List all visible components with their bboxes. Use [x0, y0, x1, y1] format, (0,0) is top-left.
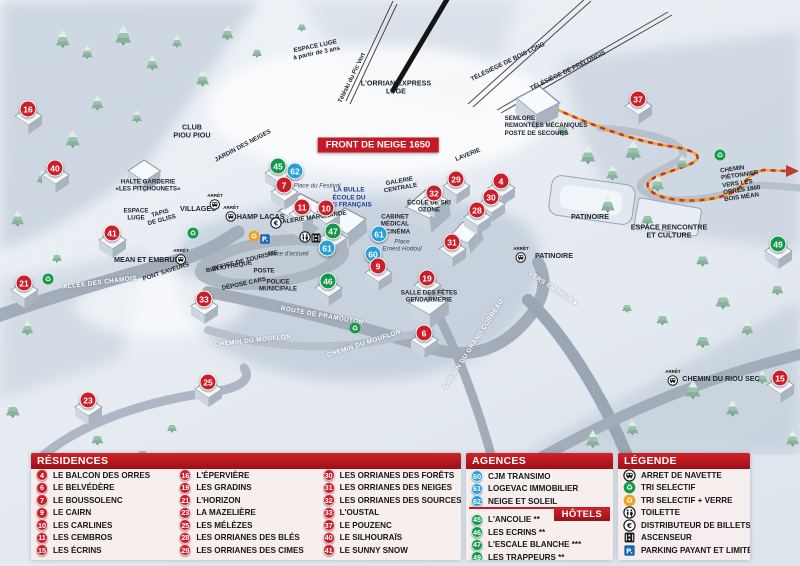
- legend-row: 40LE SILHOURAÏS: [318, 532, 461, 545]
- legend-marker-number: 28: [179, 532, 191, 544]
- legend-marker-number: 4: [36, 469, 48, 481]
- map-marker-6: 6: [416, 325, 433, 342]
- legend-row-label: LES TRAPPEURS **: [488, 553, 564, 560]
- key-row: €DISTRIBUTEUR DE BILLETS: [618, 519, 750, 532]
- map-marker-4: 4: [493, 173, 510, 190]
- key-row-label: PARKING PAYANT ET LIMITÉ: [641, 546, 750, 555]
- legend-row: 7LE BOUSSOLENC: [31, 494, 174, 507]
- legend-row-label: LE SUNNY SNOW: [340, 546, 408, 555]
- parking-icon: P.: [259, 233, 271, 245]
- legend-row: 16L'ÉPERVIÈRE: [174, 469, 317, 482]
- map-marker-46: 46: [320, 273, 337, 290]
- map-label: Place Ernest Hodoul: [382, 239, 421, 254]
- map-marker-19: 19: [419, 270, 436, 287]
- legend-marker-number: 23: [179, 507, 191, 519]
- legend-row: 29LES ORRIANES DES CIMES: [174, 544, 317, 557]
- map-marker-49: 49: [770, 236, 787, 253]
- map-label: POSTE: [254, 267, 275, 274]
- map-marker-30: 30: [483, 189, 500, 206]
- map-label: ÉCOLE DE SKI OZONE: [407, 200, 451, 215]
- legend-row: 6LE BELVÉDÈRE: [31, 482, 174, 495]
- map-marker-47: 47: [325, 223, 342, 240]
- resort-map-poster: ESPACE LUGE à partir de 3 ansTéléski du …: [0, 0, 800, 566]
- legend-marker-number: 25: [179, 519, 191, 531]
- legend-row: 47L'ESCALE BLANCHE ***: [466, 539, 613, 552]
- legend-row-label: LE POUZENC: [340, 521, 392, 530]
- map-marker-62: 62: [287, 163, 304, 180]
- map-marker-7: 7: [276, 177, 293, 194]
- legend-marker-number: 9: [36, 507, 48, 519]
- residences-header: RÉSIDENCES: [31, 453, 461, 469]
- legend-marker-number: 40: [323, 532, 335, 544]
- map-label: PATINOIRE: [571, 213, 609, 221]
- legend-row: 32LES ORRIANES DES SOURCES: [318, 494, 461, 507]
- legend-marker-number: 41: [323, 544, 335, 556]
- legend-row: 19LES GRADINS: [174, 482, 317, 495]
- legend-marker-number: 7: [36, 494, 48, 506]
- recycle-green-icon: ♻: [623, 481, 636, 494]
- key-row: P.PARKING PAYANT ET LIMITÉ: [618, 544, 750, 557]
- map-marker-40: 40: [47, 160, 64, 177]
- bus-stop-icon: ARRÊT: [223, 206, 239, 222]
- map-label: L'ORRIAN EXPRESS LUGE: [361, 80, 431, 97]
- key-header: LÉGENDE: [618, 453, 750, 469]
- key-row: ASCENSEUR: [618, 532, 750, 545]
- legend-row: 61LOGEVAC IMMOBILIER: [466, 483, 613, 496]
- legend-row-label: LES ÉCRINS: [53, 546, 102, 555]
- svg-text:P.: P.: [262, 236, 268, 244]
- arret-caption: ARRÊT: [173, 249, 189, 254]
- bus-stop-icon: ARRÊT: [513, 247, 529, 263]
- recycle-green-icon: ♻: [714, 149, 726, 161]
- legend-row: 9LE CAIRN: [31, 507, 174, 520]
- legend-marker-number: 10: [36, 519, 48, 531]
- legend-row: 62NEIGE ET SOLEIL: [466, 495, 613, 508]
- legend-marker-number: 15: [36, 544, 48, 556]
- key-section: LÉGENDE ARRET DE NAVETTE♻TRI SELECTIF♻TR…: [618, 453, 750, 560]
- agencies-hotels-section: AGENCES IMMOBILIÈRES 60CJM TRANSIMO61LOG…: [466, 453, 613, 560]
- bus-stop-icon: ARRÊT: [173, 249, 189, 265]
- legend-row: 31LES ORRIANES DES NEIGES: [318, 482, 461, 495]
- legend-row: 25LES MÉLÈZES: [174, 519, 317, 532]
- legend-row-label: LA MAZELIÈRE: [196, 508, 256, 517]
- bus-icon: [623, 469, 636, 482]
- arret-caption: ARRÊT: [665, 370, 681, 375]
- parking-icon: P.: [623, 544, 636, 557]
- map-marker-9: 9: [370, 258, 387, 275]
- legend-row-label: LES ORRIANES DES BLÉS: [196, 533, 299, 542]
- key-row-label: TRI SELECTIF + VERRE: [641, 496, 733, 505]
- legend-row: 4LE BALCON DES ORRES: [31, 469, 174, 482]
- legend-marker-number: 6: [36, 482, 48, 494]
- map-marker-29: 29: [448, 171, 465, 188]
- recycle-green-icon: ♻: [349, 322, 361, 334]
- map-marker-32: 32: [426, 185, 443, 202]
- legend-row: 46LES ECRINS **: [466, 526, 613, 539]
- key-row-label: ARRET DE NAVETTE: [641, 471, 722, 480]
- map-label: PATINOIRE: [535, 252, 573, 260]
- svg-text:♻: ♻: [626, 496, 633, 505]
- legend-row-label: L'ESCALE BLANCHE ***: [488, 540, 581, 549]
- legend-row: 11LES CEMBROS: [31, 532, 174, 545]
- legend-marker-number: 30: [323, 469, 335, 481]
- legend-row: 49LES TRAPPEURS **: [466, 551, 613, 560]
- legend-marker-number: 29: [179, 544, 191, 556]
- svg-text:♻: ♻: [251, 232, 257, 241]
- elevator-icon: [623, 531, 636, 544]
- key-row-label: ASCENSEUR: [641, 533, 692, 542]
- legend-panel: RÉSIDENCES 4LE BALCON DES ORRES6LE BELVÉ…: [31, 453, 750, 560]
- legend-marker-number: 31: [323, 482, 335, 494]
- legend-row: 60CJM TRANSIMO: [466, 470, 613, 483]
- recycle-yellow-icon: ♻: [623, 494, 636, 507]
- legend-row-label: LES ORRIANES DES SOURCES: [340, 496, 461, 505]
- legend-row-label: LES MÉLÈZES: [196, 521, 252, 530]
- svg-text:€: €: [626, 521, 632, 530]
- legend-marker-number: 45: [471, 514, 483, 526]
- legend-marker-number: 46: [471, 526, 483, 538]
- residences-column: 16L'ÉPERVIÈRE19LES GRADINS21L'HORIZON23L…: [174, 469, 317, 557]
- legend-row-label: LE SILHOURAÏS: [340, 533, 403, 542]
- map-label: CINÉMA: [386, 228, 410, 235]
- legend-row-label: LE CAIRN: [53, 508, 91, 517]
- legend-row: 28LES ORRIANES DES BLÉS: [174, 532, 317, 545]
- residences-section: RÉSIDENCES 4LE BALCON DES ORRES6LE BELVÉ…: [31, 453, 461, 560]
- legend-row: 23LA MAZELIÈRE: [174, 507, 317, 520]
- recycle-green-icon: ♻: [187, 227, 199, 239]
- legend-row-label: LES CARLINES: [53, 521, 112, 530]
- map-label: HALTE GARDERIE «LES PITCHOUNETS»: [116, 179, 181, 194]
- map-marker-25: 25: [200, 374, 217, 391]
- legend-row-label: L'ÉPERVIÈRE: [196, 471, 249, 480]
- legend-marker-number: 19: [179, 482, 191, 494]
- legend-row: 30LES ORRIANES DES FORÊTS: [318, 469, 461, 482]
- key-row: ♻TRI SELECTIF + VERRE: [618, 494, 750, 507]
- map-label: POLICE MUNICIPALE: [259, 279, 297, 294]
- map-marker-45: 45: [270, 158, 287, 175]
- bus-stop-icon: ARRÊT: [207, 194, 223, 210]
- legend-marker-number: 16: [179, 469, 191, 481]
- legend-row: 21L'HORIZON: [174, 494, 317, 507]
- svg-text:♻: ♻: [717, 151, 723, 160]
- map-marker-21: 21: [16, 275, 33, 292]
- legend-row-label: LE BOUSSOLENC: [53, 496, 123, 505]
- legend-marker-number: 33: [323, 507, 335, 519]
- legend-marker-number: 61: [471, 483, 483, 495]
- map-marker-16: 16: [20, 101, 37, 118]
- arret-caption: ARRÊT: [223, 206, 239, 211]
- legend-row: 15LES ÉCRINS: [31, 544, 174, 557]
- svg-text:♻: ♻: [190, 229, 196, 238]
- legend-row-label: LES ORRIANES DES FORÊTS: [340, 471, 455, 480]
- key-row: ARRET DE NAVETTE: [618, 469, 750, 482]
- legend-row-label: L'OUSTAL: [340, 508, 380, 517]
- legend-row-label: L'HORIZON: [196, 496, 240, 505]
- map-marker-37: 37: [630, 91, 647, 108]
- key-row: ♻TRI SELECTIF: [618, 482, 750, 495]
- legend-row-label: LES ORRIANES DES CIMES: [196, 546, 303, 555]
- arret-caption: ARRÊT: [207, 194, 223, 199]
- svg-text:♻: ♻: [352, 324, 358, 333]
- legend-row-label: LE BALCON DES ORRES: [53, 471, 150, 480]
- map-label: MEAN ET EMBRUN: [114, 256, 180, 264]
- legend-row-label: LES ORRIANES DES NEIGES: [340, 483, 452, 492]
- map-label: CHEMIN PIÉTONNIER VERS LES ORRES 1800 BO…: [720, 160, 777, 203]
- legend-row-label: LOGEVAC IMMOBILIER: [488, 484, 578, 493]
- key-row-label: TRI SELECTIF: [641, 483, 695, 492]
- svg-text:€: €: [273, 219, 279, 227]
- legend-row-label: LES GRADINS: [196, 483, 251, 492]
- map-marker-28: 28: [469, 202, 486, 219]
- legend-row-label: L'ANCOLIE **: [488, 515, 540, 524]
- key-row-label: TOILETTE: [641, 508, 680, 517]
- hotels-header: HÔTELS: [554, 508, 610, 521]
- map-marker-10: 10: [318, 200, 335, 217]
- legend-row: 10LES CARLINES: [31, 519, 174, 532]
- map-marker-31: 31: [444, 234, 461, 251]
- map-marker-61: 61: [371, 226, 388, 243]
- legend-marker-number: 11: [36, 532, 48, 544]
- legend-row: 41LE SUNNY SNOW: [318, 544, 461, 557]
- svg-text:♻: ♻: [45, 275, 51, 284]
- legend-row-label: LE BELVÉDÈRE: [53, 483, 114, 492]
- legend-marker-number: 32: [323, 494, 335, 506]
- map-label: ESPACE RENCONTRE ET CULTURE: [631, 224, 708, 241]
- key-row: TOILETTE: [618, 507, 750, 520]
- legend-row: 37LE POUZENC: [318, 519, 461, 532]
- front-de-neige-banner: FRONT DE NEIGE 1650: [318, 138, 439, 153]
- legend-marker-number: 47: [471, 539, 483, 551]
- svg-text:P.: P.: [626, 546, 633, 555]
- map-label: SALLE DES FÊTES GENDARMERIE: [401, 290, 457, 305]
- map-marker-61: 61: [319, 240, 336, 257]
- map-marker-33: 33: [196, 291, 213, 308]
- legend-marker-number: 62: [471, 495, 483, 507]
- key-row-label: DISTRIBUTEUR DE BILLETS: [641, 521, 750, 530]
- recycle-green-icon: ♻: [42, 273, 54, 285]
- map-marker-41: 41: [104, 225, 121, 242]
- legend-row-label: LES ECRINS **: [488, 528, 545, 537]
- agencies-header: AGENCES IMMOBILIÈRES: [466, 453, 613, 469]
- map-label: CHEMIN DU RIOU SEC: [682, 375, 759, 383]
- residences-column: 4LE BALCON DES ORRES6LE BELVÉDÈRE7LE BOU…: [31, 469, 174, 557]
- map-label: CABINET MÉDICAL: [381, 214, 409, 229]
- residences-column: 30LES ORRIANES DES FORÊTS31LES ORRIANES …: [318, 469, 461, 557]
- wc-icon: [623, 506, 636, 519]
- legend-marker-number: 21: [179, 494, 191, 506]
- arret-caption: ARRÊT: [513, 247, 529, 252]
- map-marker-11: 11: [294, 199, 311, 216]
- legend-row: 33L'OUSTAL: [318, 507, 461, 520]
- legend-marker-number: 49: [471, 551, 483, 560]
- svg-text:♻: ♻: [626, 483, 633, 492]
- bus-stop-icon: ARRÊT: [665, 370, 681, 386]
- legend-marker-number: 37: [323, 519, 335, 531]
- legend-row-label: LES CEMBROS: [53, 533, 112, 542]
- legend-row-label: CJM TRANSIMO: [488, 472, 551, 481]
- map-marker-23: 23: [80, 392, 97, 409]
- map-label: CLUB PIOU PIOU: [173, 124, 210, 141]
- legend-row-label: NEIGE ET SOLEIL: [488, 497, 557, 506]
- map-label: SEMLORE REMONTÉES MÉCANIQUES POSTE DE SE…: [505, 115, 588, 137]
- euro-icon: €: [623, 519, 636, 532]
- map-marker-15: 15: [772, 370, 789, 387]
- euro-icon: €: [270, 217, 282, 229]
